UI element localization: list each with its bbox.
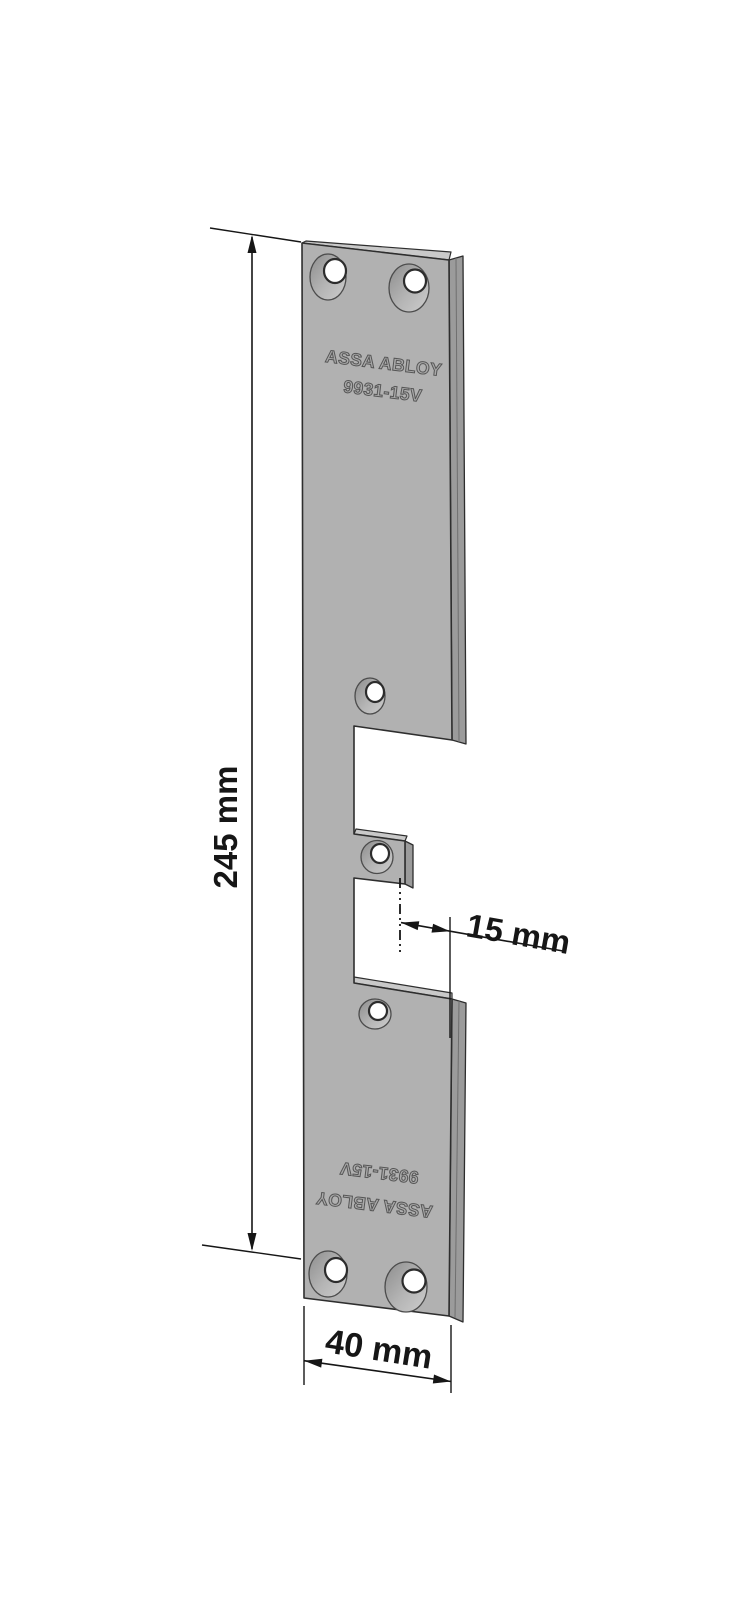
strike-plate-technical-drawing: ASSA ABLOY 9931-15V 9931-15V ASSA ABLOY …: [0, 0, 744, 1600]
width-dimension: 40 mm: [304, 1306, 451, 1393]
height-dimension-label: 245 mm: [207, 766, 244, 889]
bore-hole: [366, 682, 384, 702]
arrowhead-right: [432, 924, 451, 933]
arrowhead-right: [433, 1375, 451, 1384]
height-dimension: 245 mm: [202, 228, 301, 1259]
bore-hole: [369, 1002, 387, 1020]
arrowhead-left: [304, 1359, 322, 1368]
bore-hole: [403, 1270, 426, 1293]
fixing-hole-tab: [361, 841, 393, 874]
fixing-hole-lower: [359, 999, 391, 1029]
screw-hole-top-left: [310, 254, 346, 300]
bore-hole: [404, 270, 426, 293]
plate: ASSA ABLOY 9931-15V 9931-15V ASSA ABLOY: [302, 241, 466, 1322]
arrowhead-left: [401, 921, 419, 930]
bore-hole: [324, 259, 346, 283]
bore-hole: [325, 1258, 347, 1282]
bore-hole: [371, 844, 389, 863]
screw-hole-bottom-right: [385, 1262, 427, 1312]
plate-front-face: [302, 243, 452, 1316]
arrowhead-down: [248, 1233, 257, 1251]
arrowhead-up: [248, 235, 257, 253]
fixing-hole-upper: [355, 678, 385, 714]
width-dimension-label: 40 mm: [323, 1322, 435, 1376]
offset-dimension-label: 15 mm: [464, 906, 573, 961]
screw-hole-top-right: [389, 264, 429, 312]
screw-hole-bottom-left: [309, 1251, 347, 1297]
tab-side-surface: [405, 841, 413, 888]
extension-line-top: [210, 228, 301, 242]
